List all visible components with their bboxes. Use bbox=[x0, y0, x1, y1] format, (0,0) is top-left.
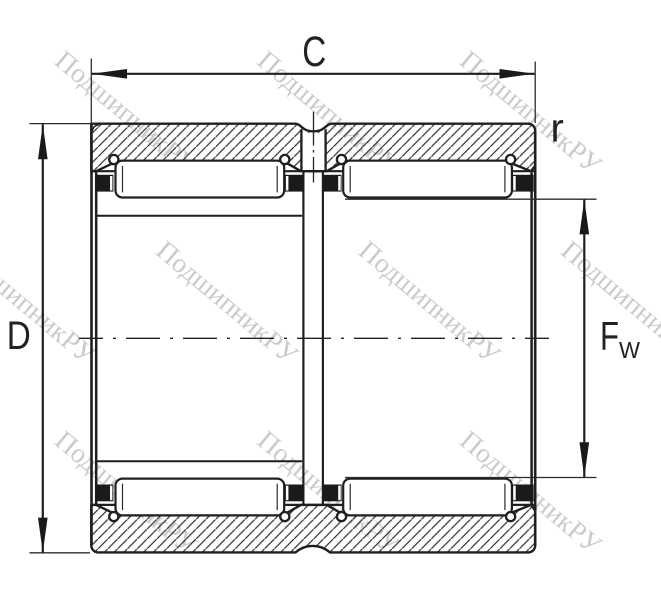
svg-text:ПодшипникРУ: ПодшипникРУ bbox=[353, 234, 507, 370]
svg-text:r: r bbox=[551, 107, 564, 151]
svg-text:D: D bbox=[7, 314, 31, 358]
svg-text:ПодшипникРУ: ПодшипникРУ bbox=[151, 234, 305, 370]
svg-text:F: F bbox=[600, 315, 619, 359]
svg-text:W: W bbox=[619, 337, 641, 363]
svg-text:C: C bbox=[302, 28, 326, 76]
